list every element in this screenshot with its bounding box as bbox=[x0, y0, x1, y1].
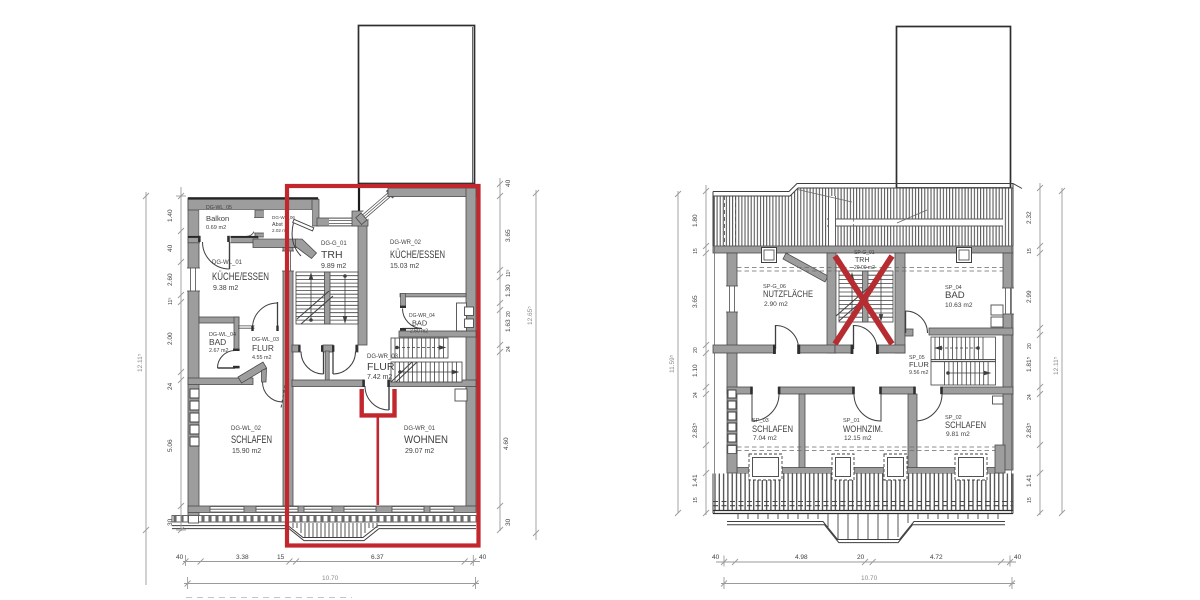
svg-text:DG-WR_03: DG-WR_03 bbox=[367, 354, 399, 360]
svg-text:40: 40 bbox=[1014, 554, 1022, 561]
svg-text:10.70: 10.70 bbox=[861, 575, 878, 582]
svg-text:WOHNZIM.: WOHNZIM. bbox=[843, 424, 883, 435]
svg-text:2.60 m2: 2.60 m2 bbox=[410, 329, 428, 335]
svg-text:3.65: 3.65 bbox=[505, 229, 512, 242]
svg-text:30: 30 bbox=[167, 518, 174, 526]
svg-text:BAD: BAD bbox=[945, 290, 965, 301]
svg-text:1.30: 1.30 bbox=[505, 284, 512, 297]
svg-text:20: 20 bbox=[506, 311, 512, 317]
svg-text:12.65⁵: 12.65⁵ bbox=[527, 306, 534, 325]
svg-text:1.10: 1.10 bbox=[692, 364, 699, 377]
svg-text:40: 40 bbox=[176, 554, 184, 561]
svg-text:15: 15 bbox=[1027, 497, 1033, 503]
svg-text:10.70: 10.70 bbox=[322, 575, 339, 582]
svg-text:SCHLAFEN: SCHLAFEN bbox=[945, 420, 986, 431]
svg-text:11.59⁵: 11.59⁵ bbox=[669, 354, 676, 373]
svg-text:DG-WL_02: DG-WL_02 bbox=[231, 426, 262, 432]
svg-text:1.41: 1.41 bbox=[1026, 474, 1033, 487]
svg-text:SCHLAFEN: SCHLAFEN bbox=[752, 424, 793, 435]
svg-text:TRH: TRH bbox=[321, 249, 343, 261]
svg-text:11⁵: 11⁵ bbox=[168, 297, 174, 305]
svg-text:15.03 m2: 15.03 m2 bbox=[390, 263, 419, 270]
svg-text:3.65: 3.65 bbox=[692, 295, 699, 308]
svg-text:TRH: TRH bbox=[855, 257, 869, 264]
svg-text:20: 20 bbox=[1027, 343, 1033, 349]
svg-text:11⁵: 11⁵ bbox=[506, 269, 512, 277]
svg-text:29.07 m2: 29.07 m2 bbox=[405, 448, 434, 455]
svg-text:2.90 m2: 2.90 m2 bbox=[764, 301, 788, 308]
svg-text:20: 20 bbox=[693, 347, 699, 353]
svg-text:9.38 m2: 9.38 m2 bbox=[213, 285, 238, 292]
svg-text:FLUR: FLUR bbox=[367, 361, 395, 373]
svg-text:2.60: 2.60 bbox=[167, 273, 174, 286]
svg-text:2.67 m2: 2.67 m2 bbox=[209, 348, 228, 354]
svg-text:40: 40 bbox=[712, 554, 720, 561]
svg-text:KÜCHE/ESSEN: KÜCHE/ESSEN bbox=[390, 249, 445, 261]
svg-text:Balkon: Balkon bbox=[206, 214, 229, 223]
svg-text:BAD: BAD bbox=[412, 319, 427, 328]
svg-text:2.83⁵: 2.83⁵ bbox=[1026, 422, 1033, 438]
svg-text:15.90 m2: 15.90 m2 bbox=[232, 448, 261, 455]
svg-text:3.38: 3.38 bbox=[236, 554, 249, 561]
svg-text:4.98: 4.98 bbox=[795, 554, 808, 561]
svg-text:6.37: 6.37 bbox=[371, 554, 384, 561]
svg-text:4.72: 4.72 bbox=[930, 554, 943, 561]
svg-text:0.69 m2: 0.69 m2 bbox=[206, 225, 226, 231]
svg-text:DG-WL_01: DG-WL_01 bbox=[212, 260, 243, 266]
svg-text:15: 15 bbox=[693, 497, 699, 503]
svg-text:2.32: 2.32 bbox=[1026, 211, 1033, 224]
svg-text:4.55 m2: 4.55 m2 bbox=[252, 355, 271, 361]
svg-text:7.04 m2: 7.04 m2 bbox=[753, 435, 777, 442]
svg-text:40: 40 bbox=[167, 244, 174, 252]
svg-text:4.60: 4.60 bbox=[503, 437, 510, 450]
svg-text:9.89 m2: 9.89 m2 bbox=[321, 263, 346, 270]
svg-text:24: 24 bbox=[1027, 394, 1033, 400]
svg-text:40: 40 bbox=[479, 554, 487, 561]
svg-text:9.81 m2: 9.81 m2 bbox=[946, 431, 970, 438]
svg-text:1.41: 1.41 bbox=[692, 474, 699, 487]
svg-text:DG-WL_06: DG-WL_06 bbox=[272, 215, 295, 220]
svg-text:15: 15 bbox=[277, 554, 285, 561]
svg-text:WOHNEN: WOHNEN bbox=[404, 434, 448, 446]
svg-text:30: 30 bbox=[505, 518, 512, 526]
svg-text:FLUR: FLUR bbox=[909, 360, 929, 369]
svg-text:1.81⁵: 1.81⁵ bbox=[1026, 356, 1033, 372]
svg-text:KÜCHE/ESSEN: KÜCHE/ESSEN bbox=[212, 271, 269, 283]
svg-text:1.63: 1.63 bbox=[505, 319, 512, 332]
svg-text:BAD: BAD bbox=[209, 337, 226, 347]
svg-text:DG-WR_01: DG-WR_01 bbox=[404, 426, 436, 432]
svg-text:2.83⁵: 2.83⁵ bbox=[692, 422, 699, 438]
svg-text:DG-WR_02: DG-WR_02 bbox=[390, 240, 422, 246]
svg-text:DG-G_01: DG-G_01 bbox=[321, 241, 347, 247]
svg-text:2.00: 2.00 bbox=[167, 332, 174, 345]
svg-text:10.63 m2: 10.63 m2 bbox=[945, 302, 973, 309]
svg-text:1.80: 1.80 bbox=[692, 214, 699, 227]
svg-text:40: 40 bbox=[505, 179, 512, 187]
svg-text:20: 20 bbox=[857, 554, 865, 561]
svg-text:5.06: 5.06 bbox=[167, 439, 174, 452]
svg-text:1.40: 1.40 bbox=[167, 209, 174, 222]
svg-text:FLUR: FLUR bbox=[252, 343, 274, 353]
svg-text:SCHLAFEN: SCHLAFEN bbox=[231, 434, 272, 446]
svg-text:24: 24 bbox=[506, 346, 512, 352]
svg-text:9.56 m2: 9.56 m2 bbox=[909, 370, 928, 376]
svg-text:12.11⁵: 12.11⁵ bbox=[137, 353, 144, 372]
svg-text:24: 24 bbox=[693, 392, 699, 398]
svg-text:2.99: 2.99 bbox=[1026, 290, 1033, 303]
svg-text:SP-G_01: SP-G_01 bbox=[854, 250, 875, 256]
svg-text:12.15 m2: 12.15 m2 bbox=[844, 435, 872, 442]
svg-text:24: 24 bbox=[167, 382, 174, 390]
svg-text:NUTZFLÄCHE: NUTZFLÄCHE bbox=[763, 289, 813, 300]
svg-text:DG-WL_05: DG-WL_05 bbox=[206, 205, 232, 211]
svg-text:12.11⁵: 12.11⁵ bbox=[1053, 356, 1060, 375]
svg-text:15: 15 bbox=[1027, 248, 1033, 254]
svg-text:15: 15 bbox=[693, 248, 699, 254]
svg-text:20.00 m2: 20.00 m2 bbox=[854, 265, 875, 271]
